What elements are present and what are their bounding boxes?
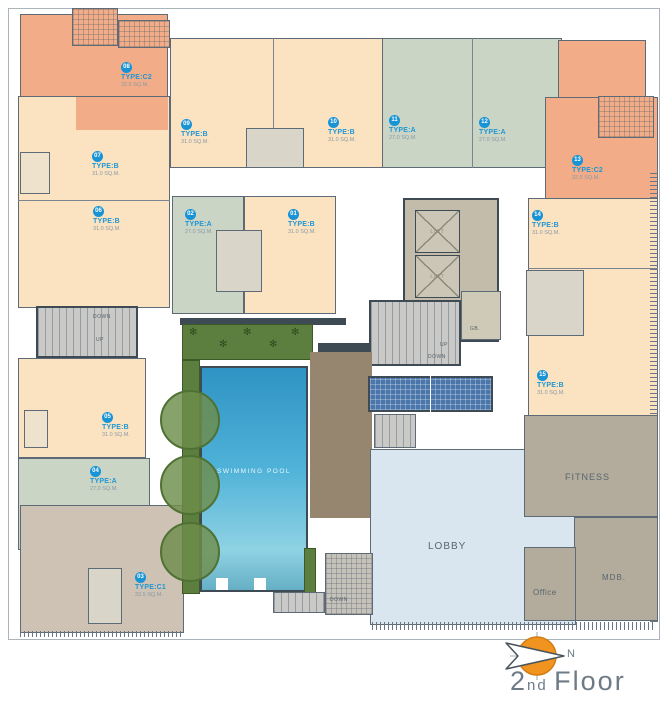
unit-area-label: 27.0 SQ.M.: [389, 135, 417, 141]
floor-ordinal: nd: [527, 677, 548, 694]
office-room: [524, 547, 576, 621]
stairwell-central: [369, 300, 461, 366]
bathroom-tiles: [72, 8, 118, 46]
bathroom-tiles: [216, 230, 262, 292]
unit-type-label: TYPE:A: [185, 221, 213, 229]
mdb-label: MDB.: [602, 573, 626, 582]
unit-type-label: TYPE:B: [92, 163, 120, 171]
stair-up-label: UP: [440, 342, 448, 348]
external-stair: [273, 592, 325, 613]
unit-area-label: 27.0 SQ.M.: [479, 137, 507, 143]
unit-type-label: TYPE:B: [288, 221, 316, 229]
stair-down-label: DOWN: [93, 314, 111, 320]
unit-number-badge: 05: [102, 412, 113, 423]
lift-label: LIFT: [416, 274, 459, 280]
unit-type-label: TYPE:A: [479, 129, 507, 137]
unit-number-badge: 12: [479, 117, 490, 128]
tree-icon: [160, 455, 220, 515]
bathroom-tiles: [88, 568, 122, 624]
tree-icon: [160, 390, 220, 450]
unit-number-badge: 10: [328, 117, 339, 128]
unit-type-label: TYPE:A: [90, 478, 118, 486]
bathroom-tiles: [20, 152, 50, 194]
bathroom-tiles: [526, 270, 584, 336]
unit-type-label: TYPE:C1: [135, 584, 166, 592]
lift-label: LIFT: [416, 229, 459, 235]
unit-03-label: 03 TYPE:C1 33.5 SQ.M.: [135, 572, 166, 598]
unit-type-label: TYPE:C2: [572, 167, 603, 175]
deck: [310, 352, 372, 518]
unit-type-label: TYPE:B: [93, 218, 121, 226]
pool-step: [254, 578, 266, 590]
unit-type-label: TYPE:B: [537, 382, 565, 390]
office-label: Office: [533, 588, 557, 597]
floor-word: Floor: [554, 666, 626, 696]
palm-icon: ✻: [189, 327, 197, 338]
floor-title: 2nd Floor: [510, 666, 626, 697]
unit-10-label: 10 TYPE:B 31.0 SQ.M.: [328, 117, 356, 143]
unit-08-label: 08 TYPE:C2 32.5 SQ.M.: [121, 62, 152, 88]
floor-number: 2: [510, 666, 527, 696]
mdb-room: [574, 517, 658, 621]
patio: [325, 553, 373, 615]
unit-type-label: TYPE:B: [532, 222, 560, 230]
unit-number-badge: 02: [185, 209, 196, 220]
planter: ✻ ✻ ✻ ✻ ✻: [182, 324, 313, 360]
unit-area-label: 31.0 SQ.M.: [532, 230, 560, 236]
unit-type-label: TYPE:B: [328, 129, 356, 137]
unit-area-label: 27.0 SQ.M.: [90, 486, 118, 492]
fitness-label: FITNESS: [565, 472, 610, 482]
unit-number-badge: 04: [90, 466, 101, 477]
gb-room: [461, 291, 501, 340]
stairwell-left: [36, 306, 138, 358]
unit-01-label: 01 TYPE:B 31.0 SQ.M.: [288, 209, 316, 235]
room-unit-08-lower: [76, 97, 168, 130]
unit-area-label: 27.0 SQ.M.: [185, 229, 213, 235]
unit-number-badge: 07: [92, 151, 103, 162]
unit-11-label: 11 TYPE:A 27.0 SQ.M.: [389, 115, 417, 141]
unit-area-label: 32.5 SQ.M.: [121, 82, 152, 88]
balcony-ticks: [20, 631, 182, 637]
gb-label: GB.: [470, 326, 480, 332]
wall: [18, 200, 170, 201]
pool-label: SWIMMING POOL: [202, 468, 306, 475]
stair-up-label: UP: [96, 337, 104, 343]
unit-type-label: TYPE:B: [181, 131, 209, 139]
unit-type-label: TYPE:B: [102, 424, 130, 432]
palm-icon: ✻: [269, 339, 277, 350]
bathroom-tiles: [598, 96, 654, 138]
unit-number-badge: 08: [121, 62, 132, 73]
unit-area-label: 31.0 SQ.M.: [102, 432, 130, 438]
unit-area-label: 31.0 SQ.M.: [288, 229, 316, 235]
north-label: N: [567, 648, 575, 660]
stair-down-label: DOWN: [330, 597, 348, 603]
lift-shaft-2: LIFT: [415, 255, 460, 298]
bathroom-tiles: [118, 20, 170, 48]
corridor-stair: [374, 414, 416, 448]
floor-plan: DOWN UP LIFT LIFT GB. UP DOWN ✻ ✻ ✻ ✻ ✻: [0, 0, 664, 707]
room-unit-13-upper: [558, 40, 646, 98]
unit-09-label: 09 TYPE:B 31.0 SQ.M.: [181, 119, 209, 145]
unit-type-label: TYPE:A: [389, 127, 417, 135]
stair-down-label: DOWN: [428, 354, 446, 360]
fitness-room: [524, 415, 658, 517]
unit-area-label: 31.0 SQ.M.: [537, 390, 565, 396]
wall: [528, 268, 658, 269]
unit-number-badge: 06: [93, 206, 104, 217]
unit-number-badge: 15: [537, 370, 548, 381]
bathroom-tiles: [246, 128, 304, 168]
unit-area-label: 33.5 SQ.M.: [135, 592, 166, 598]
unit-13-label: 13 TYPE:C2 32.5 SQ.M.: [572, 155, 603, 181]
unit-number-badge: 09: [181, 119, 192, 130]
unit-12-label: 12 TYPE:A 27.0 SQ.M.: [479, 117, 507, 143]
unit-04-label: 04 TYPE:A 27.0 SQ.M.: [90, 466, 118, 492]
tree-icon: [160, 522, 220, 582]
palm-icon: ✻: [243, 327, 251, 338]
unit-15-label: 15 TYPE:B 31.0 SQ.M.: [537, 370, 565, 396]
palm-icon: ✻: [291, 327, 299, 338]
wall: [430, 376, 431, 412]
palm-icon: ✻: [219, 339, 227, 350]
planter: [304, 548, 316, 594]
unit-05-label: 05 TYPE:B 31.0 SQ.M.: [102, 412, 130, 438]
unit-area-label: 31.0 SQ.M.: [328, 137, 356, 143]
bathroom-tiles: [24, 410, 48, 448]
unit-07-label: 07 TYPE:B 31.0 SQ.M.: [92, 151, 120, 177]
pool-step: [216, 578, 228, 590]
wall: [472, 38, 473, 168]
unit-number-badge: 14: [532, 210, 543, 221]
unit-area-label: 31.0 SQ.M.: [93, 226, 121, 232]
unit-type-label: TYPE:C2: [121, 74, 152, 82]
unit-number-badge: 11: [389, 115, 400, 126]
unit-number-badge: 13: [572, 155, 583, 166]
unit-number-badge: 01: [288, 209, 299, 220]
lift-shaft-1: LIFT: [415, 210, 460, 253]
unit-area-label: 31.0 SQ.M.: [181, 139, 209, 145]
unit-02-label: 02 TYPE:A 27.0 SQ.M.: [185, 209, 213, 235]
unit-14-label: 14 TYPE:B 31.0 SQ.M.: [532, 210, 560, 236]
unit-number-badge: 03: [135, 572, 146, 583]
unit-area-label: 31.0 SQ.M.: [92, 171, 120, 177]
unit-area-label: 32.5 SQ.M.: [572, 175, 603, 181]
lobby-label: LOBBY: [428, 541, 466, 552]
unit-06-label: 06 TYPE:B 31.0 SQ.M.: [93, 206, 121, 232]
balcony-ticks: [372, 622, 656, 630]
